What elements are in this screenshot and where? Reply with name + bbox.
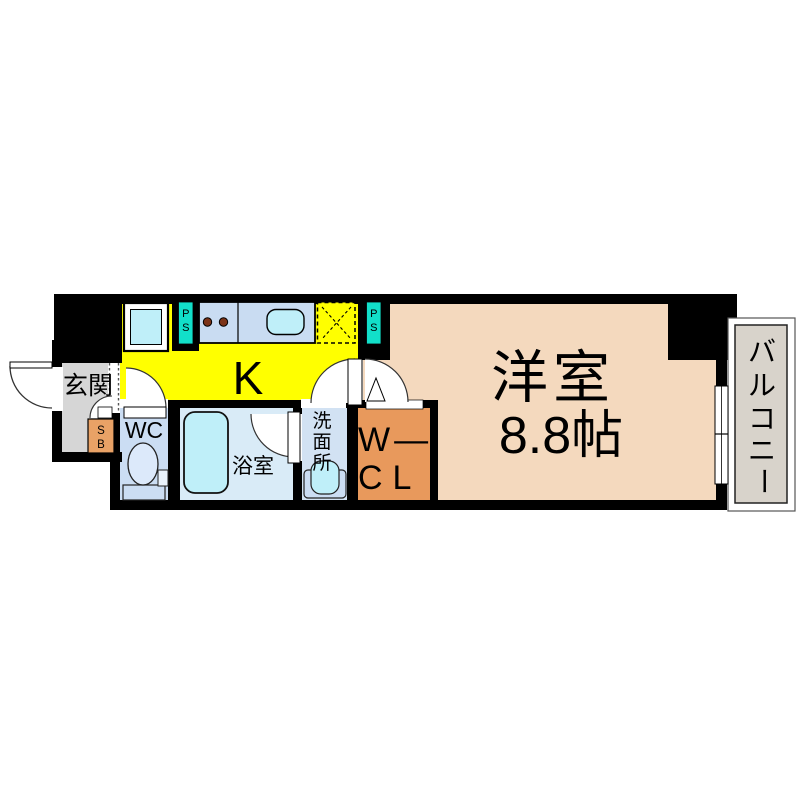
balcony-label-char3: コ bbox=[748, 403, 776, 434]
balcony-label-char1: バ bbox=[748, 336, 776, 367]
bathroom-door-leaf bbox=[288, 412, 300, 463]
balcony-label-char2: ル bbox=[748, 370, 776, 401]
wall-washroom-wcl bbox=[347, 400, 358, 500]
genkan-label: 玄関 bbox=[63, 372, 113, 400]
wall-bottom bbox=[110, 500, 727, 510]
western-room-size-label: 8.8帖 bbox=[499, 407, 623, 465]
washroom-label-char3: 所 bbox=[312, 452, 331, 474]
wall-block-top-right bbox=[668, 294, 737, 360]
wall-bath-washroom-lower bbox=[293, 461, 302, 500]
floorplan-svg: P S P S S B bbox=[0, 0, 800, 800]
ps1-label-p: P bbox=[182, 308, 189, 320]
floorplan-page: P S P S S B bbox=[0, 0, 800, 800]
kitchen-sink bbox=[267, 310, 304, 335]
balcony-window bbox=[715, 386, 728, 484]
sb-label-s: S bbox=[97, 425, 105, 437]
ps1-label-s: S bbox=[182, 322, 189, 334]
wall-wc-bath bbox=[168, 400, 180, 500]
wall-right-upper bbox=[716, 357, 727, 388]
wcl-label-line1: W— bbox=[358, 421, 432, 459]
entrance-door-leaf bbox=[10, 362, 52, 368]
stove-burner-1 bbox=[203, 318, 211, 326]
washroom-label-char2: 面 bbox=[312, 432, 331, 453]
bathtub bbox=[184, 412, 228, 493]
kitchen-door-leaf bbox=[348, 359, 362, 405]
balcony-label-char4: ニ bbox=[748, 435, 776, 466]
ps2-label-p: P bbox=[370, 308, 377, 320]
wall-left-upper bbox=[52, 340, 62, 367]
toilet-tank bbox=[123, 485, 165, 500]
western-room-label: 洋室 bbox=[491, 346, 615, 410]
balcony-label-char5: ー bbox=[748, 467, 779, 495]
toilet-bowl bbox=[128, 443, 158, 485]
washroom-label-char1: 洗 bbox=[312, 410, 331, 432]
washing-machine-inner bbox=[131, 310, 162, 345]
bathroom-label: 浴室 bbox=[232, 455, 274, 478]
toilet-flush-unit bbox=[158, 470, 168, 486]
wall-block-top-left bbox=[54, 294, 122, 363]
entrance-door-sweep bbox=[10, 366, 52, 408]
wcl-label-line2: CL bbox=[358, 459, 421, 497]
shoe-box: S B bbox=[88, 419, 114, 453]
genkan-small-door-leaf bbox=[98, 407, 112, 418]
stove-burner-2 bbox=[219, 318, 227, 326]
wall-right-lower bbox=[716, 482, 727, 500]
entrance-doorway-gap bbox=[51, 367, 63, 411]
sb-label-b: B bbox=[97, 439, 105, 451]
kitchen-label: K bbox=[233, 352, 264, 404]
ps2-label-s: S bbox=[370, 322, 377, 334]
wc-label: WC bbox=[125, 417, 163, 443]
